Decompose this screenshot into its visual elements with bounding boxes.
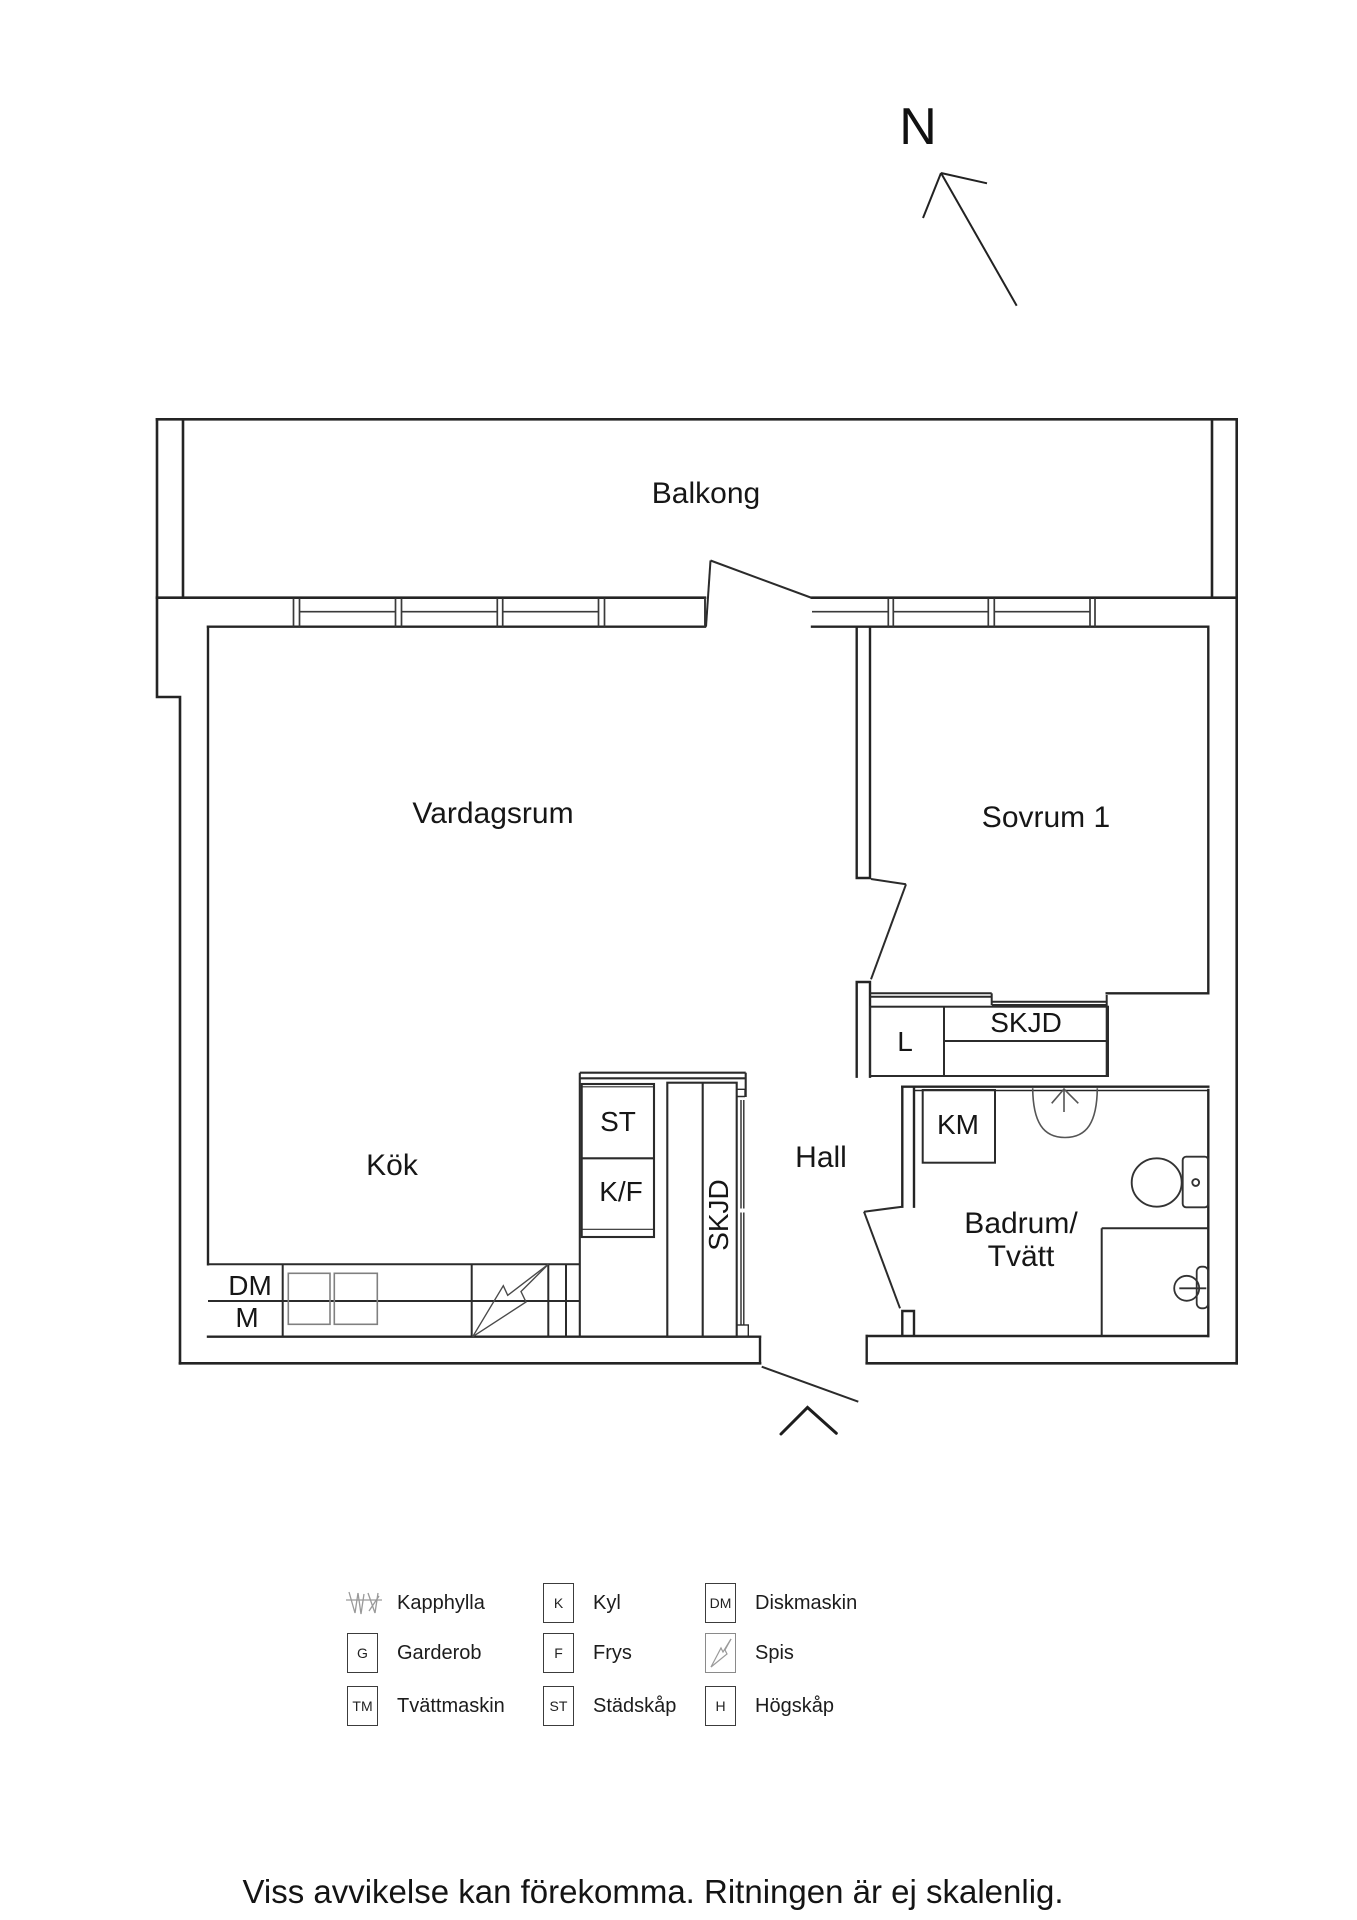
room-label-kok: Kök: [366, 1151, 418, 1181]
legend-symbol-box: G: [347, 1633, 378, 1673]
legend-label: Garderob: [397, 1642, 482, 1665]
legend-item-diskmaskin: DM Diskmaskin: [705, 1583, 857, 1623]
legend-symbol-box: H: [705, 1686, 736, 1726]
legend-label: Högskåp: [755, 1695, 834, 1718]
room-label-balkong: Balkong: [652, 479, 760, 509]
legend-symbol-box: ST: [543, 1686, 574, 1726]
toilet-icon: [1132, 1157, 1209, 1208]
legend-item-spis: Spis: [705, 1633, 794, 1673]
fixture-label-skjd-bedroom: SKJD: [990, 1009, 1062, 1037]
floorplan-svg: [0, 0, 1357, 1920]
legend-label: Kapphylla: [397, 1592, 485, 1615]
legend-item-frys: F Frys: [543, 1633, 632, 1673]
legend-label: Spis: [755, 1642, 794, 1665]
bedroom-door: [871, 879, 906, 979]
shower-arch-icon: [1033, 1088, 1098, 1137]
kapphylla-icon: [345, 1589, 383, 1617]
interior-walls: [208, 627, 1208, 1364]
shower-corner: [1102, 1228, 1209, 1336]
room-label-sovrum: Sovrum 1: [982, 803, 1110, 833]
fixture-label-linen: L: [897, 1028, 913, 1056]
north-arrow-icon: [923, 173, 1017, 306]
room-label-badrum-line2: Tvätt: [988, 1242, 1055, 1272]
fixture-label-dm: DM: [228, 1272, 272, 1300]
kitchen-sink: [288, 1273, 377, 1324]
bathroom-door: [864, 1207, 902, 1309]
legend-item-hogskap: H Högskåp: [705, 1686, 834, 1726]
fixture-label-km: KM: [937, 1111, 979, 1139]
legend-symbol-box: K: [543, 1583, 574, 1623]
legend-item-stadskap: ST Städskåp: [543, 1686, 676, 1726]
legend-label: Kyl: [593, 1592, 621, 1615]
balcony-door: [706, 561, 812, 627]
compass-north-label: N: [899, 101, 937, 153]
floorplan-page: { "compass": { "north_label": "N" }, "ro…: [0, 0, 1357, 1920]
window-band: [294, 598, 1096, 627]
legend-symbol-box: DM: [705, 1583, 736, 1623]
legend-label: Diskmaskin: [755, 1592, 857, 1615]
fixture-label-m: M: [235, 1304, 258, 1332]
legend-item-tvattmaskin: TM Tvättmaskin: [347, 1686, 505, 1726]
legend-label: Frys: [593, 1642, 632, 1665]
fixture-label-kf: K/F: [599, 1178, 643, 1206]
room-label-badrum-line1: Badrum/: [964, 1209, 1077, 1239]
entrance-door: [762, 1367, 859, 1402]
legend-item-kyl: K Kyl: [543, 1583, 621, 1623]
legend-item-garderob: G Garderob: [347, 1633, 482, 1673]
entrance-arrow-icon: [781, 1408, 836, 1435]
footer-disclaimer: Viss avvikelse kan förekomma. Ritningen …: [242, 1873, 1063, 1911]
legend-symbol-box: TM: [347, 1686, 378, 1726]
washbasin-icon: [1174, 1267, 1208, 1309]
legend-symbol-box: F: [543, 1633, 574, 1673]
legend-label: Tvättmaskin: [397, 1695, 505, 1718]
fixture-label-skjd-hall: SKJD: [705, 1179, 733, 1251]
spis-icon: [705, 1633, 736, 1673]
legend-label: Städskåp: [593, 1695, 676, 1718]
fixture-label-st: ST: [600, 1108, 636, 1136]
legend-item-kapphylla: Kapphylla: [345, 1583, 485, 1623]
room-label-vardagsrum: Vardagsrum: [412, 799, 573, 829]
room-label-hall: Hall: [795, 1143, 847, 1173]
